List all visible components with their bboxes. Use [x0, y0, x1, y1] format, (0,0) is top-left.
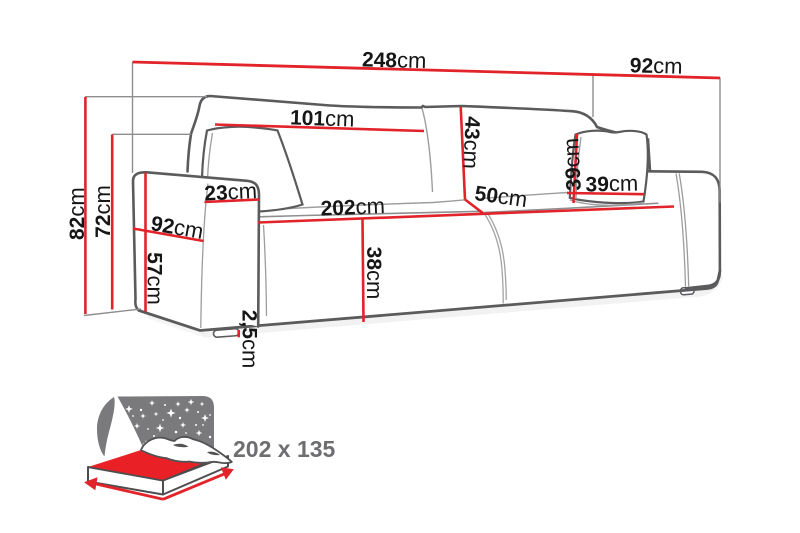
- svg-text:39cm: 39cm: [585, 171, 638, 197]
- svg-text:202 x 135: 202 x 135: [233, 436, 336, 462]
- svg-text:39cm: 39cm: [558, 137, 586, 191]
- svg-text:43cm: 43cm: [458, 116, 485, 170]
- svg-text:38cm: 38cm: [362, 247, 387, 300]
- svg-text:92cm: 92cm: [630, 52, 683, 78]
- svg-text:72cm: 72cm: [90, 185, 115, 238]
- svg-text:202cm: 202cm: [320, 193, 385, 220]
- svg-text:57cm: 57cm: [143, 252, 168, 305]
- svg-text:23cm: 23cm: [204, 178, 258, 205]
- svg-text:2,5cm: 2,5cm: [238, 310, 263, 369]
- svg-text:101cm: 101cm: [290, 104, 355, 131]
- svg-text:248cm: 248cm: [362, 46, 427, 73]
- svg-text:82cm: 82cm: [64, 187, 89, 240]
